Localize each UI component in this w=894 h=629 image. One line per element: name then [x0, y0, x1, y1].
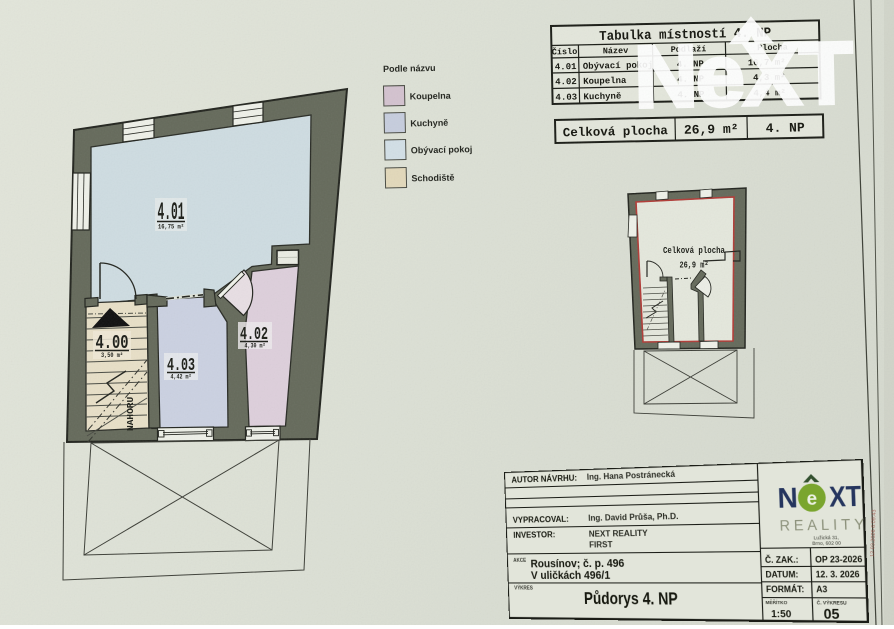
svg-text:FIRST: FIRST	[589, 539, 613, 550]
svg-text:e: e	[806, 489, 818, 510]
svg-text:1:50: 1:50	[771, 607, 792, 619]
svg-text:AUTOR NÁVRHU:: AUTOR NÁVRHU:	[511, 473, 577, 485]
svg-text:DATUM:: DATUM:	[765, 570, 798, 580]
svg-text:A3: A3	[816, 585, 828, 595]
svg-text:OP 23-2026: OP 23-2026	[815, 555, 863, 565]
svg-text:05: 05	[823, 608, 840, 623]
svg-text:AKCE: AKCE	[513, 557, 526, 563]
svg-text:REALITY: REALITY	[779, 515, 868, 534]
svg-text:N: N	[777, 481, 798, 513]
svg-text:12. 3. 2026: 12. 3. 2026	[816, 570, 860, 580]
svg-text:Č. VÝKRESU: Č. VÝKRESU	[817, 599, 847, 605]
svg-text:Brno, 602 00: Brno, 602 00	[812, 540, 842, 547]
svg-text:VYPRACOVAL:: VYPRACOVAL:	[513, 514, 569, 525]
svg-text:VÝKRES: VÝKRES	[514, 584, 533, 591]
svg-text:Ing. David Průša, Ph.D.: Ing. David Průša, Ph.D.	[588, 511, 679, 523]
svg-text:XT: XT	[829, 480, 862, 513]
svg-text:Č. ZAK.:: Č. ZAK.:	[765, 554, 799, 565]
svg-text:FORMÁT:: FORMÁT:	[766, 584, 805, 595]
svg-text:INVESTOR:: INVESTOR:	[513, 529, 555, 540]
svg-text:MĚŘÍTKO: MĚŘÍTKO	[765, 599, 787, 605]
svg-text:Půdorys 4. NP: Půdorys 4. NP	[584, 589, 679, 609]
svg-text:V uličkách 496/1: V uličkách 496/1	[531, 570, 611, 583]
svg-text:NEXT REALITY: NEXT REALITY	[589, 528, 648, 539]
